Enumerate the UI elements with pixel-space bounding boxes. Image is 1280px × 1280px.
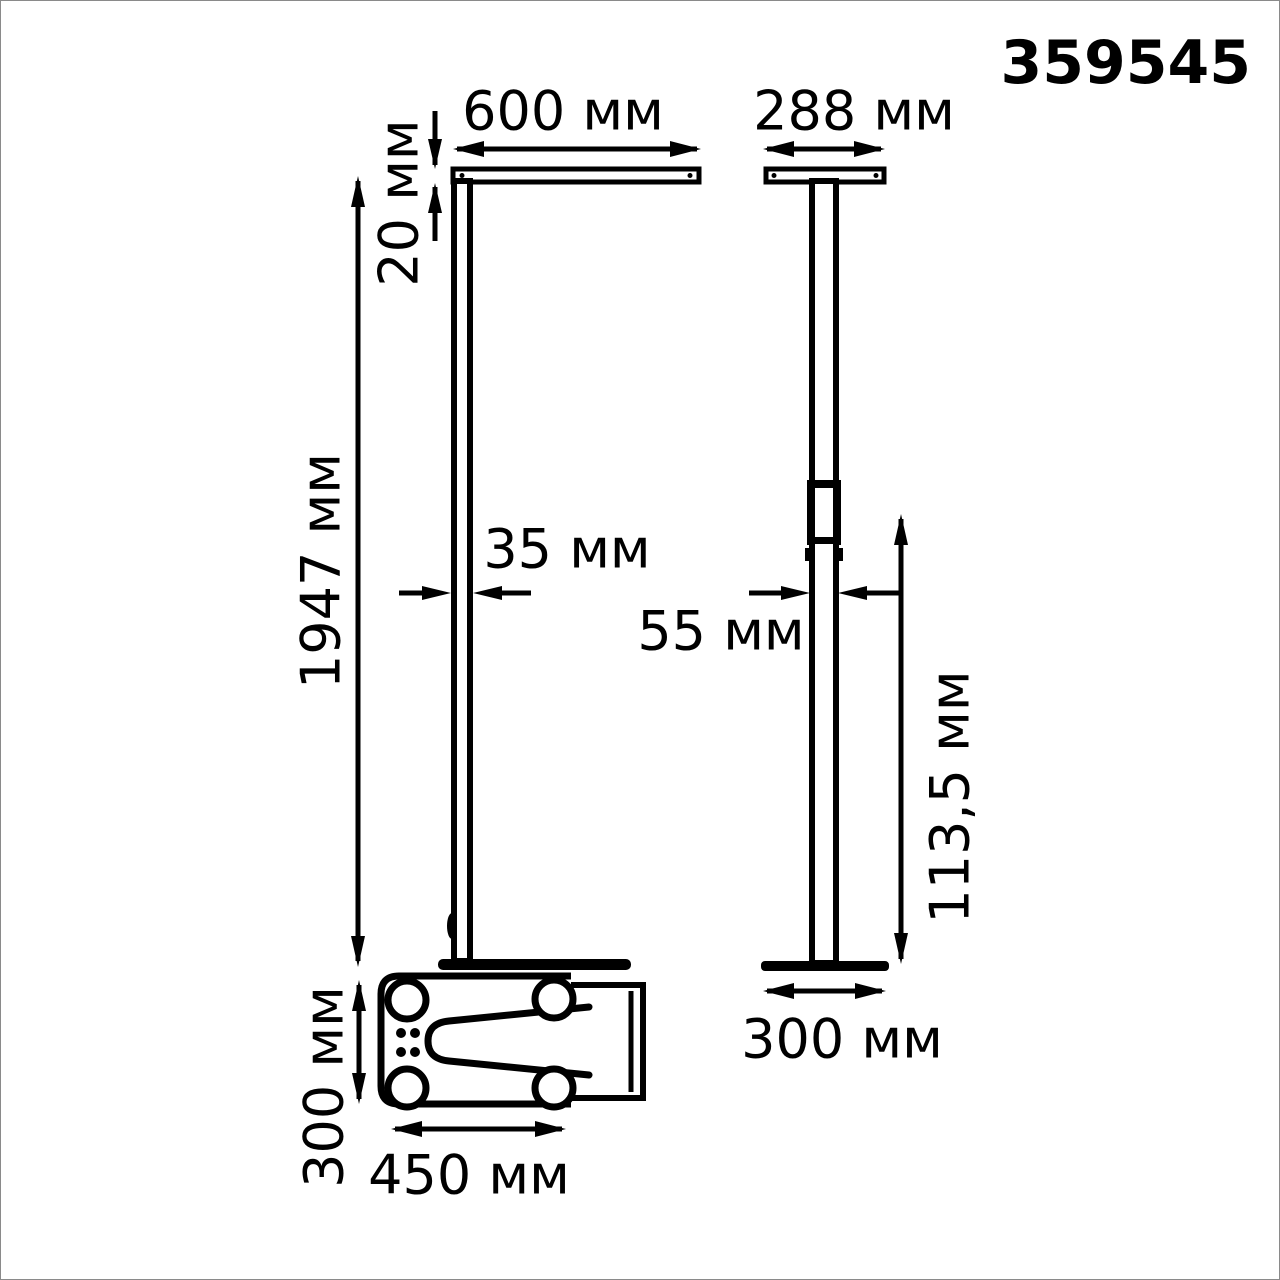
caster-wheel-top-left [388, 981, 426, 1019]
dim-label-base-width: 300 мм [293, 986, 356, 1188]
technical-drawing-page: 359545 600 мм 288 мм 20 мм 1947 мм 35 мм… [0, 0, 1280, 1280]
side-pole-joint-right-tick [836, 548, 843, 561]
dim-head-depth-arrow [763, 141, 885, 157]
dim-pole-height-arrow [351, 176, 365, 967]
dim-label-head-width: 600 мм [462, 80, 664, 143]
dim-label-pole-depth: 55 мм [637, 600, 804, 663]
side-pole-lower [812, 541, 836, 963]
front-base-bar [438, 959, 631, 970]
dim-base-length-arrow [391, 1121, 566, 1137]
base-screw-dot [396, 1028, 406, 1038]
base-screw-dot [396, 1047, 406, 1057]
base-screw-dot [410, 1047, 420, 1057]
side-view [761, 169, 889, 971]
product-code: 359545 [1001, 28, 1252, 98]
base-top-view [381, 976, 643, 1107]
dim-label-base-length: 450 мм [368, 1144, 570, 1207]
dim-lower-section-arrow [894, 514, 908, 964]
base-screw-dot [410, 1028, 420, 1038]
side-head-right-cap-dot [874, 173, 879, 178]
front-head-right-cap-dot [688, 173, 693, 178]
front-pole [454, 181, 470, 961]
caster-wheel-bottom-right [535, 1069, 573, 1107]
front-pole-switch-bump [447, 913, 457, 939]
caster-wheel-bottom-left [388, 1069, 426, 1107]
side-base-bar [761, 961, 889, 971]
dim-label-pole-width: 35 мм [483, 518, 650, 581]
front-head-left-cap-dot [460, 173, 465, 178]
side-pole-joint-left-tick [805, 548, 812, 561]
dim-label-lower-section: 113,5 мм [919, 670, 982, 923]
dimension-drawing: 359545 600 мм 288 мм 20 мм 1947 мм 35 мм… [1, 1, 1280, 1280]
dim-label-pole-height: 1947 мм [290, 453, 353, 689]
dim-label-base-depth: 300 мм [741, 1008, 943, 1071]
dim-label-head-thickness: 20 мм [368, 119, 431, 286]
dim-label-head-depth: 288 мм [753, 80, 955, 143]
front-lamp-head [453, 169, 699, 182]
caster-wheel-top-right [535, 980, 573, 1018]
dim-base-depth-arrow [763, 983, 886, 999]
side-head-left-cap-dot [772, 173, 777, 178]
side-pole-upper [812, 181, 836, 486]
dim-head-width-arrow [453, 141, 701, 157]
side-touch-control [811, 484, 837, 541]
